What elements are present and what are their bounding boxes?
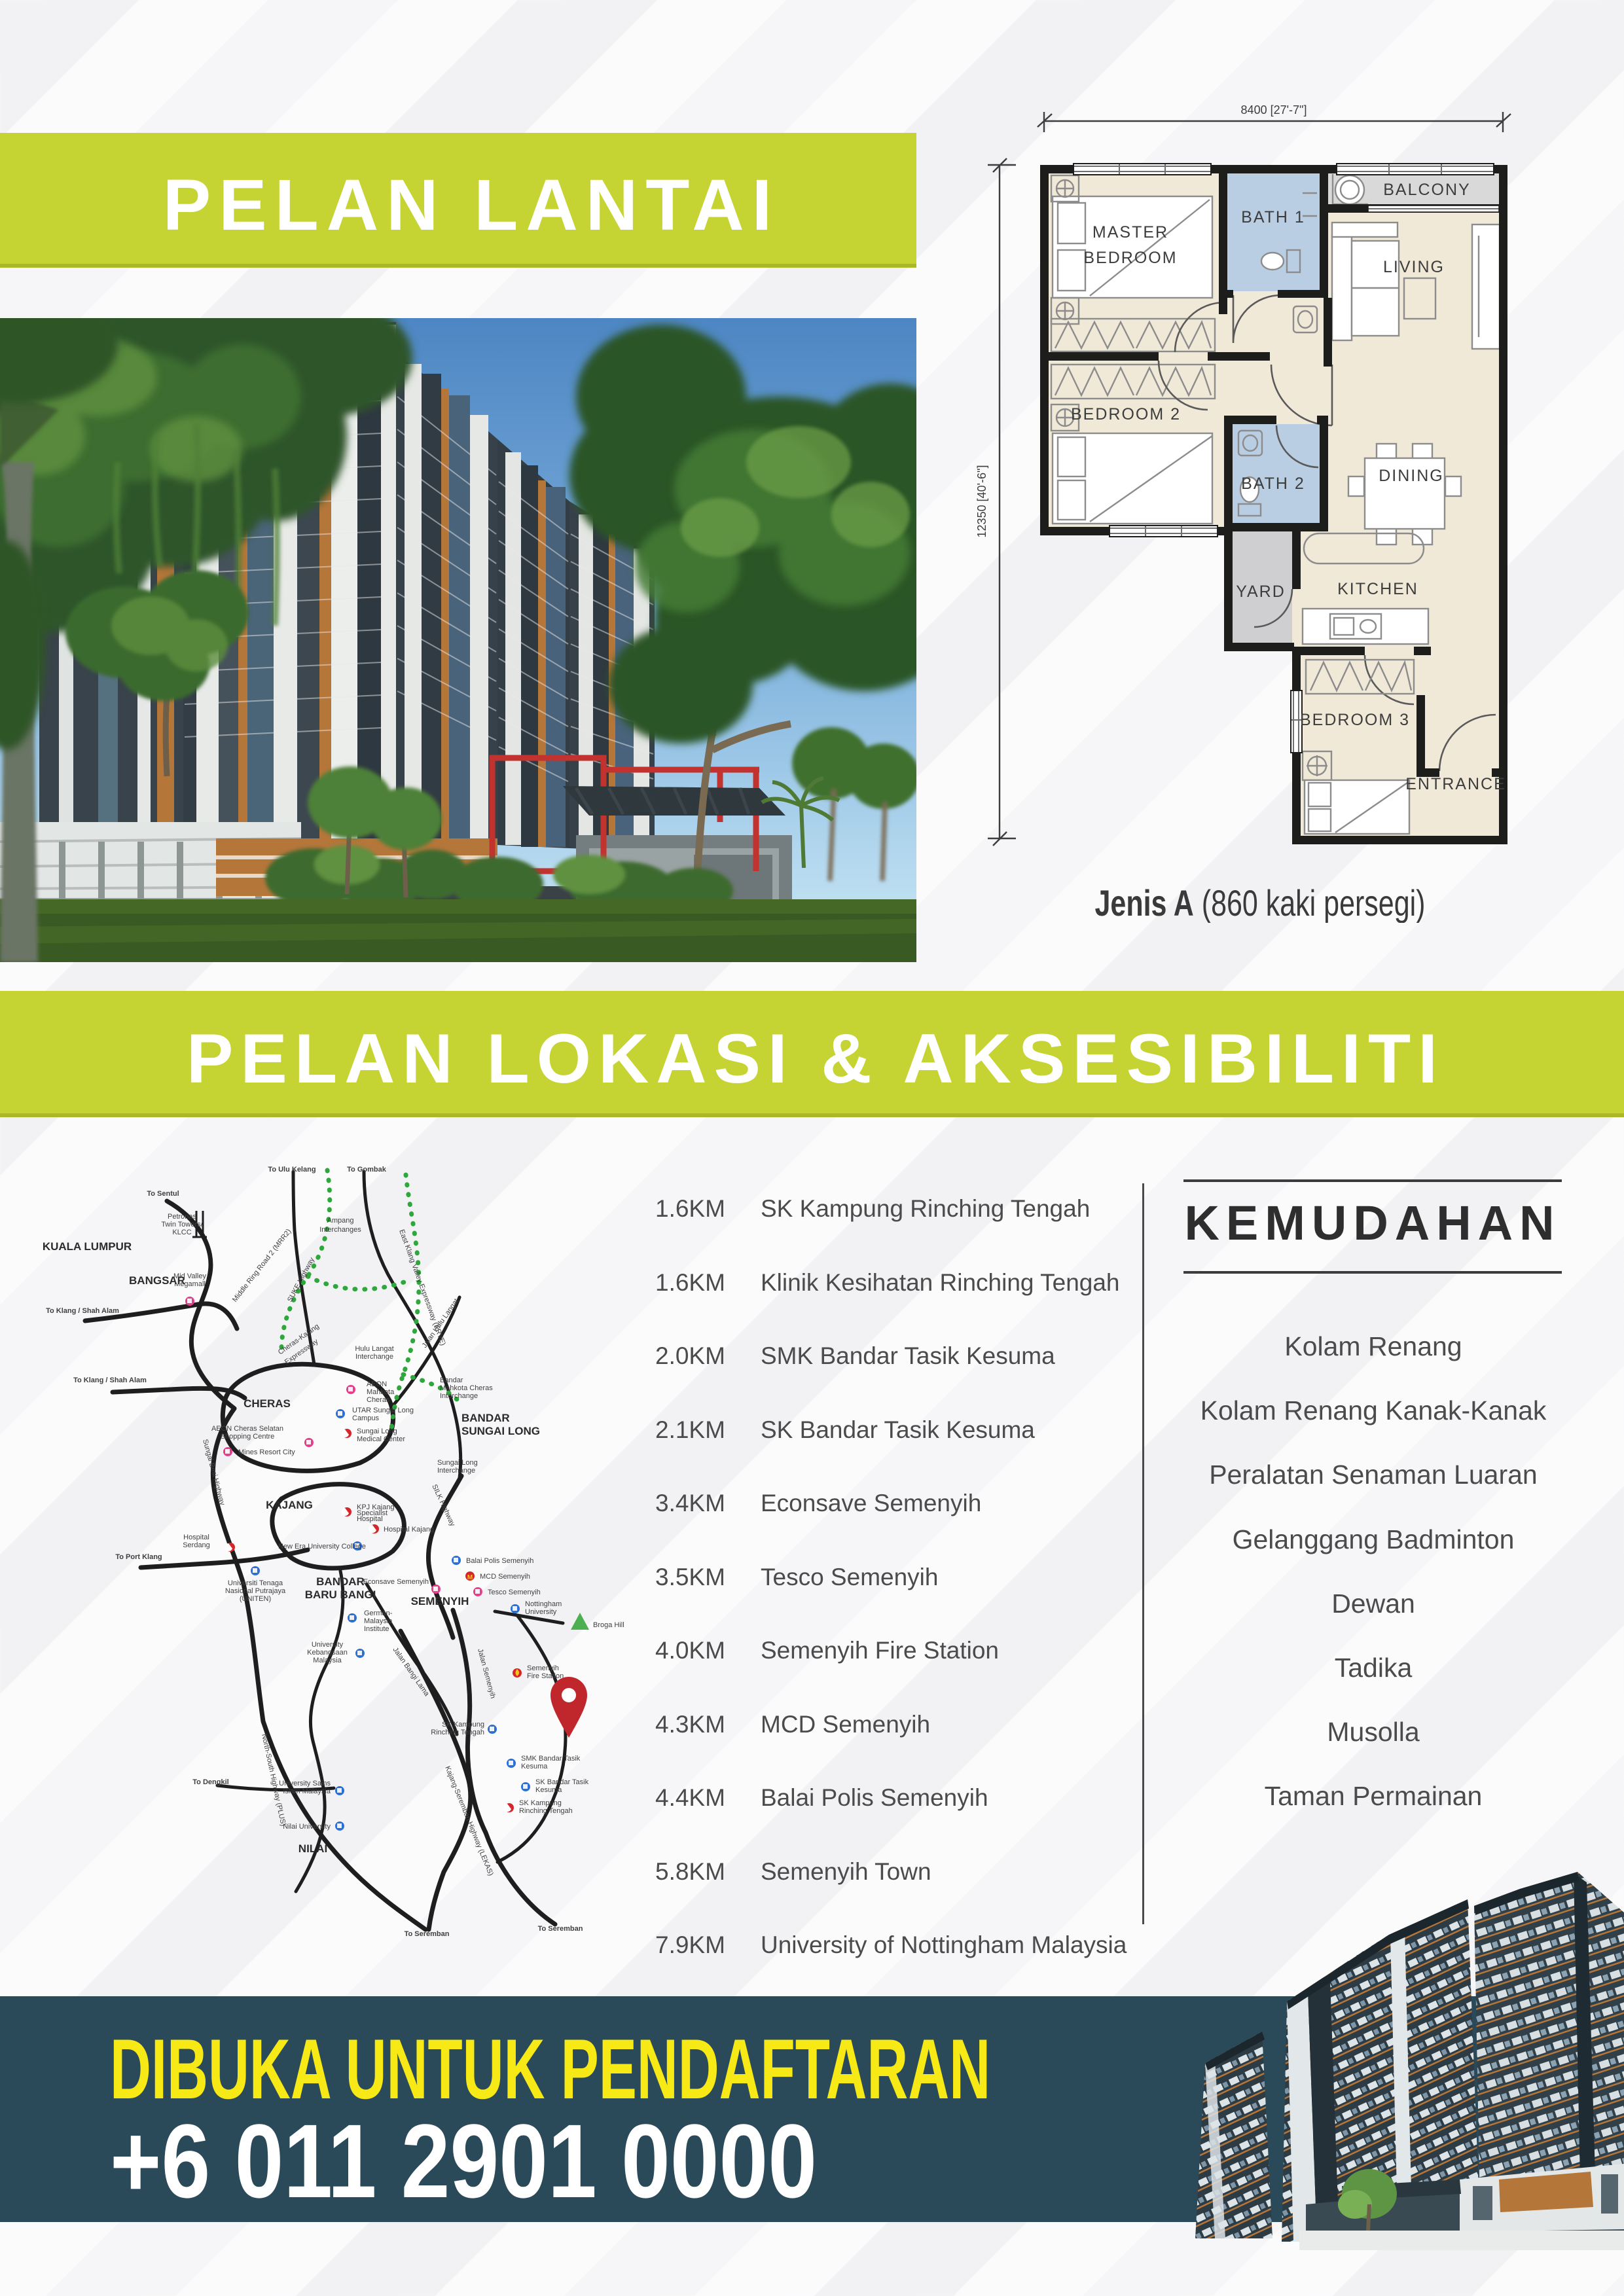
svg-text:To Gombak: To Gombak [347,1166,387,1174]
svg-text:Broga Hill: Broga Hill [593,1621,624,1629]
svg-text:Shopping Centre: Shopping Centre [221,1433,275,1441]
svg-text:BATH 2: BATH 2 [1241,475,1305,493]
svg-text:Megamall: Megamall [174,1280,206,1288]
svg-text:Interchange: Interchange [355,1353,393,1361]
svg-text:Hospital: Hospital [357,1515,383,1523]
svg-text:YARD: YARD [1236,583,1286,601]
svg-text:Kebangsaan: Kebangsaan [307,1649,348,1657]
svg-text:Interchange: Interchange [437,1467,475,1475]
svg-text:Sungai Long: Sungai Long [437,1459,478,1467]
svg-text:Interchanges: Interchanges [319,1226,361,1234]
svg-text:Mid Valley: Mid Valley [173,1272,206,1280]
svg-text:Twin Towers/: Twin Towers/ [161,1221,203,1229]
svg-text:KLCC: KLCC [172,1229,191,1236]
svg-text:Nilai University: Nilai University [283,1823,331,1831]
svg-text:Mahkota Cheras: Mahkota Cheras [440,1384,493,1392]
svg-text:BEDROOM 2: BEDROOM 2 [1071,405,1181,423]
svg-text:(UNITEN): (UNITEN) [240,1595,271,1603]
svg-text:Malaysia: Malaysia [313,1657,342,1664]
svg-text:UTAR Sungai Long: UTAR Sungai Long [352,1407,414,1414]
svg-text:To Sentul: To Sentul [147,1190,179,1198]
svg-text:Econsave Semenyih: Econsave Semenyih [363,1578,429,1586]
svg-text:Semenyih: Semenyih [527,1664,559,1672]
svg-text:Ampang: Ampang [327,1217,354,1225]
svg-text:SUKE Highway: SUKE Highway [286,1256,316,1303]
svg-text:SK Bandar Tasik: SK Bandar Tasik [535,1778,589,1786]
svg-text:SUNGAI LONG: SUNGAI LONG [461,1425,540,1437]
svg-text:Balai Polis Semenyih: Balai Polis Semenyih [466,1557,533,1565]
svg-text:University: University [525,1608,557,1616]
svg-text:Kesuma: Kesuma [535,1786,562,1794]
svg-text:Rinching Tengah: Rinching Tengah [519,1807,573,1815]
svg-text:Bandar: Bandar [440,1376,463,1384]
svg-text:Hospital Kajang: Hospital Kajang [384,1526,434,1534]
svg-text:To Klang / Shah Alam: To Klang / Shah Alam [46,1307,119,1315]
svg-text:Hospital: Hospital [183,1534,209,1541]
svg-text:BANDAR: BANDAR [316,1575,365,1588]
svg-text:Universiti Tenaga: Universiti Tenaga [228,1579,283,1587]
svg-text:8400 [27'-7"]: 8400 [27'-7"] [1241,103,1307,117]
svg-text:Petronas: Petronas [168,1213,197,1221]
svg-text:BALCONY: BALCONY [1383,181,1470,199]
svg-text:Serdang: Serdang [183,1541,210,1549]
svg-text:Campus: Campus [352,1414,379,1422]
svg-text:NILAI: NILAI [298,1842,327,1855]
svg-text:University: University [312,1641,344,1649]
svg-text:Cheras: Cheras [367,1396,390,1404]
svg-text:AEON: AEON [367,1380,387,1388]
svg-text:12350 [40'-6"]: 12350 [40'-6"] [975,465,988,538]
svg-text:Kesuma: Kesuma [521,1763,548,1770]
svg-text:Middle Ring Road 2 (MRR2): Middle Ring Road 2 (MRR2) [231,1228,293,1304]
svg-text:Institute: Institute [364,1625,389,1633]
svg-text:To Seremban: To Seremban [405,1930,450,1938]
svg-text:To Ulu Kelang: To Ulu Kelang [268,1166,316,1174]
svg-text:To Port Klang: To Port Klang [115,1553,162,1561]
svg-text:New Era University College: New Era University College [278,1543,366,1551]
svg-text:SMK Bandar Tasik: SMK Bandar Tasik [521,1755,581,1763]
svg-text:Tesco Semenyih: Tesco Semenyih [488,1588,541,1596]
svg-text:MCD Semenyih: MCD Semenyih [480,1573,530,1581]
svg-text:KITCHEN: KITCHEN [1337,580,1418,598]
svg-text:SK Kampung: SK Kampung [519,1799,562,1807]
svg-text:SEMENYIH: SEMENYIH [411,1595,469,1607]
svg-text:Hulu Langat: Hulu Langat [355,1345,393,1353]
svg-text:AEON Cheras Selatan: AEON Cheras Selatan [211,1425,283,1433]
svg-text:German-: German- [364,1609,393,1617]
svg-text:To Klang / Shah Alam: To Klang / Shah Alam [73,1376,147,1384]
svg-text:Fire Station: Fire Station [527,1672,564,1680]
svg-text:Malaysia: Malaysia [364,1617,393,1625]
svg-text:To Seremban: To Seremban [538,1925,583,1933]
svg-text:DINING: DINING [1379,467,1444,485]
svg-text:MASTER: MASTER [1092,223,1168,242]
svg-text:BEDROOM: BEDROOM [1083,249,1177,267]
svg-text:Mines Resort City: Mines Resort City [238,1448,295,1456]
svg-text:Jenis A (860 kaki persegi): Jenis A (860 kaki persegi) [1095,882,1426,923]
svg-text:Nottingham: Nottingham [525,1600,562,1608]
svg-text:BEDROOM 3: BEDROOM 3 [1300,711,1410,729]
svg-text:To Dengkil: To Dengkil [192,1778,228,1786]
svg-text:BARU BANGI: BARU BANGI [305,1588,376,1601]
svg-text:M: M [467,1574,473,1581]
svg-text:KUALA LUMPUR: KUALA LUMPUR [43,1240,132,1253]
svg-text:LIVING: LIVING [1383,258,1445,276]
svg-text:Nasional Putrajaya: Nasional Putrajaya [225,1587,286,1595]
svg-text:CHERAS: CHERAS [244,1397,291,1410]
svg-text:Sungai Long: Sungai Long [357,1427,397,1435]
svg-text:SK Kampung: SK Kampung [442,1721,484,1729]
svg-text:Medical Center: Medical Center [357,1435,405,1443]
svg-text:BANDAR: BANDAR [461,1412,510,1424]
svg-text:Mahkota: Mahkota [367,1388,395,1396]
svg-text:Interchange: Interchange [440,1392,478,1400]
svg-text:KAJANG: KAJANG [266,1499,313,1511]
svg-text:Jalan Semenyih: Jalan Semenyih [476,1648,497,1700]
svg-text:BATH 1: BATH 1 [1241,208,1305,226]
svg-text:Rinching Tengah: Rinching Tengah [431,1729,484,1736]
svg-text:University Sains: University Sains [279,1780,331,1787]
svg-text:Islam Malaysia: Islam Malaysia [283,1787,331,1795]
svg-text:ENTRANCE: ENTRANCE [1405,775,1506,793]
